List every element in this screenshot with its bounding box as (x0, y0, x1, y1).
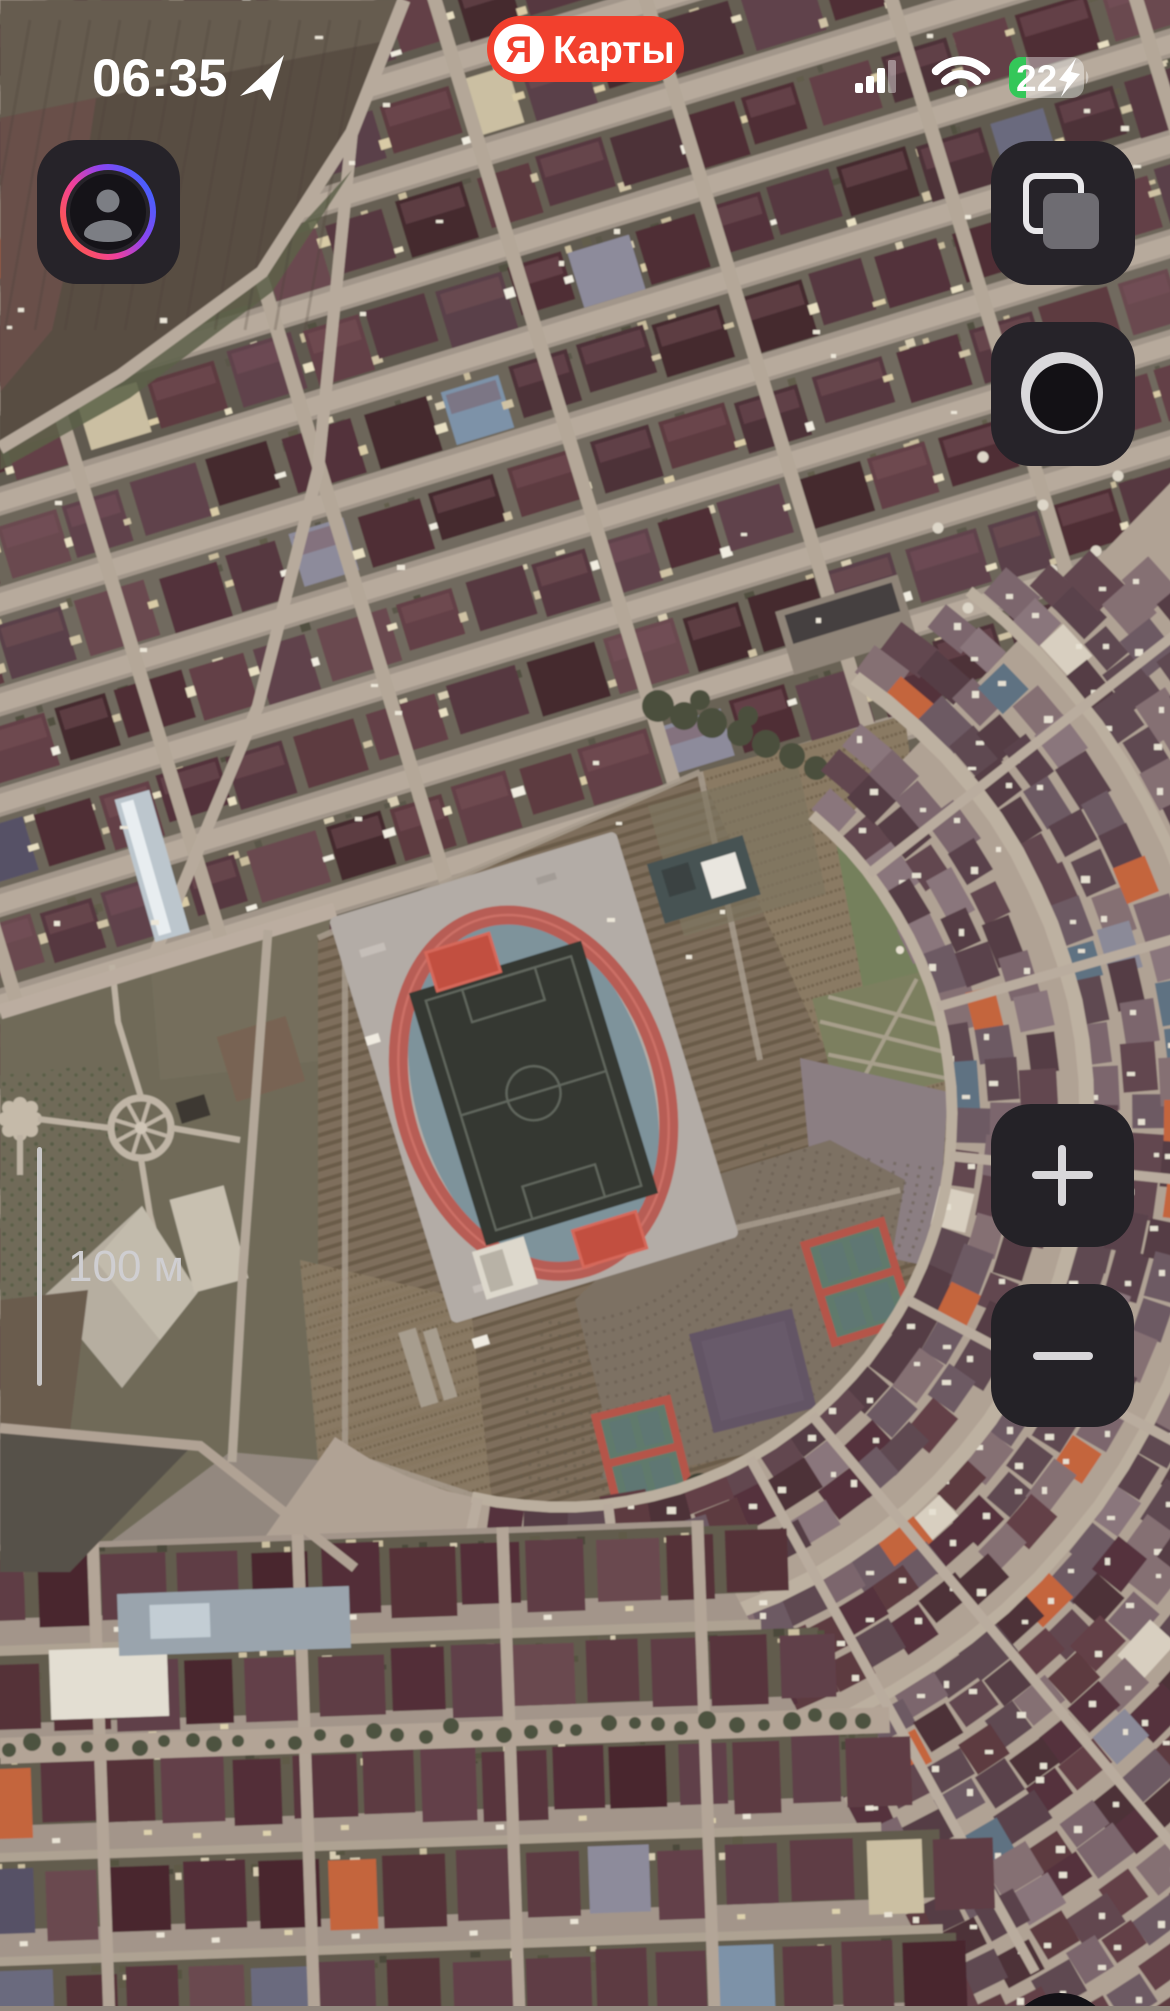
svg-text:Карты: Карты (553, 29, 675, 72)
svg-text:06:35: 06:35 (92, 49, 228, 108)
svg-text:22: 22 (1016, 58, 1057, 99)
svg-text:100 м: 100 м (68, 1242, 184, 1291)
svg-text:Я: Я (506, 29, 533, 70)
